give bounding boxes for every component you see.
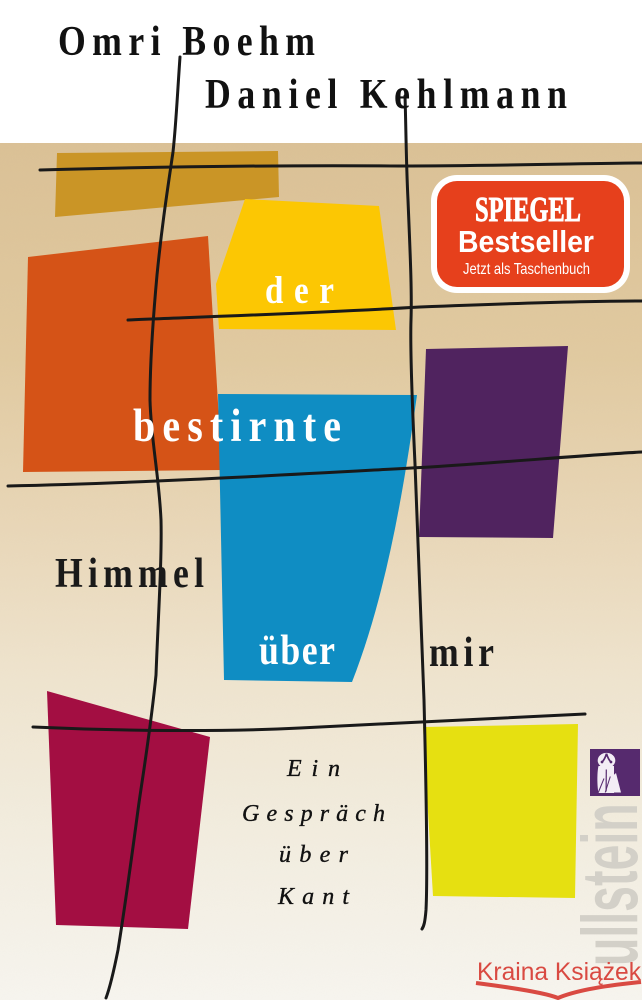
svg-text:über: über [259,627,335,673]
svg-text:Bestseller: Bestseller [458,224,594,259]
svg-text:Jetzt als Taschenbuch: Jetzt als Taschenbuch [463,261,590,278]
svg-text:der: der [265,269,334,312]
svg-text:Kraina Książek: Kraina Książek [477,958,641,986]
svg-text:Omri Boehm: Omri Boehm [58,18,315,64]
svg-text:bestirnte: bestirnte [133,400,341,452]
svg-text:Ein: Ein [286,756,340,782]
svg-text:ullstein: ullstein [565,803,642,966]
svg-text:Himmel: Himmel [55,550,204,596]
svg-text:Daniel Kehlmann: Daniel Kehlmann [205,71,567,117]
